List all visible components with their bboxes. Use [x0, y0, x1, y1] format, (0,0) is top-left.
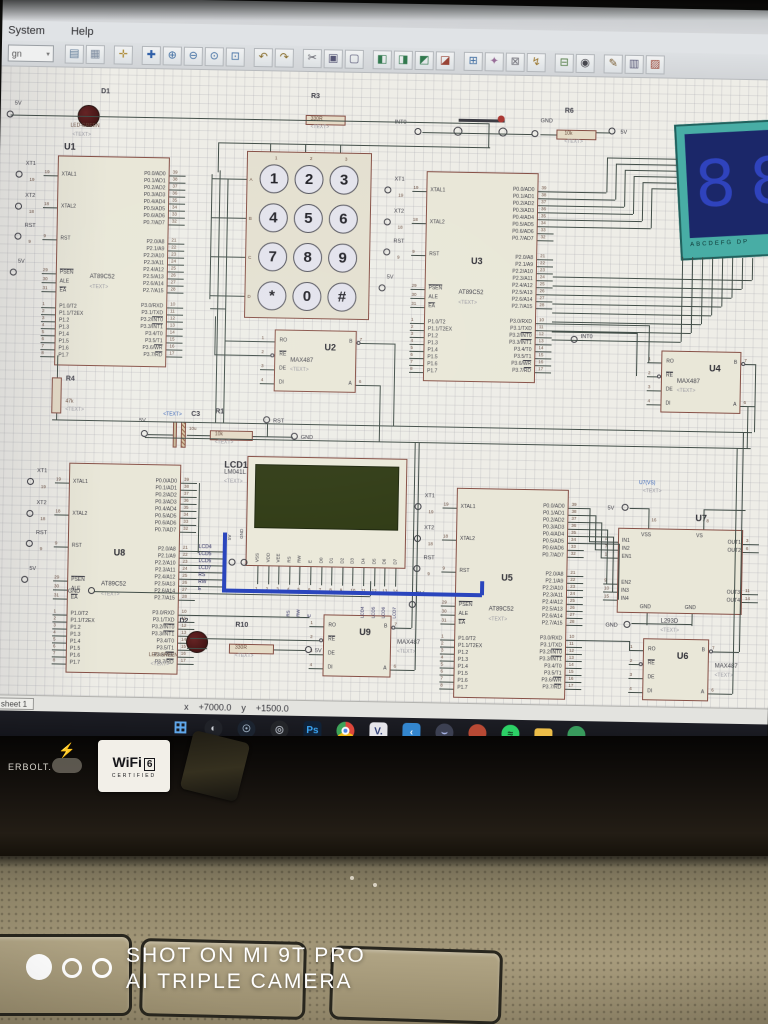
pin-label: P2.0/A8 — [479, 255, 533, 261]
reflection-dot — [373, 883, 377, 887]
pin-label: EN2 — [621, 581, 643, 586]
wire — [257, 566, 258, 584]
wire — [580, 536, 613, 538]
wire — [630, 508, 649, 509]
wire — [565, 689, 581, 690]
pin-label: P0.5/AD5 — [480, 222, 534, 228]
capacitor-plate — [173, 422, 177, 448]
wifi6-sticker: WiFi6 CERTIFIED — [98, 740, 170, 792]
pin-number: 13 — [181, 630, 186, 635]
windows-start-icon[interactable]: ⊞ — [171, 719, 189, 737]
terminal-pin-number: 19 — [41, 484, 46, 489]
terminal-pin-number: 9 — [40, 546, 43, 551]
pin-number: 27 — [171, 279, 176, 284]
wire — [223, 179, 228, 423]
pin-number: 33 — [541, 227, 546, 232]
net-label-lcd5: LCD5 — [199, 551, 212, 557]
wire — [210, 256, 245, 258]
pin-label: P1.0/T2 — [458, 637, 512, 643]
packaging-icon[interactable]: ⊠ — [506, 53, 525, 72]
wire — [642, 182, 644, 221]
pick-part-icon[interactable]: ⊞ — [464, 52, 483, 71]
terminal-rst[interactable] — [383, 248, 390, 255]
wire — [540, 134, 556, 135]
terminal-xt1[interactable] — [27, 478, 34, 485]
component-text: <TEXT> — [72, 132, 91, 138]
wire — [225, 340, 261, 342]
pin-label: P3.3/INT1 — [120, 632, 174, 638]
terminal-xt2[interactable] — [15, 203, 22, 210]
terminal-pin-number: 9 — [28, 239, 31, 244]
led-D2[interactable] — [186, 631, 208, 653]
remove-sheet-icon[interactable]: ▨ — [646, 55, 665, 74]
terminal-label: RST — [36, 530, 47, 536]
pin-label: P0.5/AD5 — [510, 539, 564, 545]
pin-number: 22 — [540, 260, 545, 265]
pin-label: P3.5/T1 — [507, 671, 561, 677]
grid-toggle-icon[interactable]: ▦ — [86, 45, 105, 64]
pin-label: P2.5/A13 — [121, 582, 175, 588]
pin-label: P2.3/A11 — [110, 260, 164, 266]
pin-label: P0.0/AD0 — [480, 187, 534, 193]
net-label-lcd4: LCD4 — [199, 544, 212, 550]
wire — [167, 292, 183, 293]
copy-icon[interactable]: ▣ — [324, 49, 343, 68]
pin-label: P2.1/A9 — [122, 554, 176, 560]
pin-number: 25 — [182, 573, 187, 578]
pin-label: P3.2/INT0 — [109, 317, 163, 323]
lcd-pin-label: D1 — [329, 537, 334, 563]
pin-label: P1.7 — [457, 686, 511, 692]
terminal-xt2[interactable] — [26, 510, 33, 517]
pin-label: P0.7/AD7 — [479, 236, 533, 242]
lcd-pin-label: D5 — [371, 538, 376, 564]
y-label: y — [241, 702, 246, 712]
pin-label: XTAL1 — [461, 505, 515, 511]
terminal-rst[interactable] — [14, 233, 21, 240]
wire — [625, 170, 677, 172]
terminal-5v[interactable] — [10, 269, 17, 276]
pin-label: B — [725, 361, 737, 366]
pin-number: 7 — [410, 359, 413, 364]
wire — [169, 224, 185, 225]
terminal-xt1[interactable] — [384, 186, 391, 193]
pin-label: EN1 — [622, 555, 644, 560]
wire — [553, 285, 742, 289]
search-tag-icon[interactable]: ◉ — [576, 54, 595, 73]
component-ref: D2 — [179, 618, 188, 625]
pin-number: 2 — [648, 370, 651, 375]
pin-label: EA — [428, 304, 482, 310]
lcd-screen — [254, 464, 399, 531]
paste-icon[interactable]: ▢ — [345, 50, 364, 69]
terminal-label: GND — [68, 589, 80, 595]
component-text: <TEXT> — [714, 673, 733, 679]
wire — [646, 613, 647, 623]
component-ref: LCD1 — [224, 459, 248, 469]
pin-label: DI — [328, 665, 358, 671]
wire — [616, 164, 677, 166]
pin-number: 38 — [571, 509, 576, 514]
terminal-gnd[interactable] — [623, 621, 630, 628]
wire — [180, 532, 196, 533]
pin-label: P2.5/A13 — [509, 607, 563, 613]
sheet-icon[interactable]: ▤ — [65, 45, 84, 64]
wire — [393, 344, 396, 426]
lcd-pin-label: RS — [286, 537, 291, 563]
wire — [629, 641, 630, 650]
terminal-xt1[interactable] — [16, 171, 23, 178]
pin-label: A — [724, 403, 736, 408]
wire — [636, 333, 638, 376]
pin-number: 1 — [630, 644, 633, 649]
wire — [441, 614, 455, 615]
wire — [211, 217, 246, 219]
pin-number: 28 — [539, 302, 544, 307]
wire — [536, 308, 552, 309]
wire — [703, 509, 704, 517]
wire — [260, 383, 274, 384]
pin-label: P1.0/T2 — [70, 612, 124, 618]
pin-number: 33 — [571, 544, 576, 549]
pin-label: ALE — [60, 279, 114, 285]
terminal-pin-number: 18 — [40, 516, 45, 521]
pin-label: RST — [72, 544, 126, 550]
pin-label: A — [375, 666, 387, 671]
terminal-label: XT1 — [425, 493, 435, 499]
inversion-bubble — [270, 353, 274, 357]
pin-number: 9 — [55, 540, 58, 545]
menu-item-help[interactable]: Help — [71, 26, 94, 38]
x-value: +7000.0 — [199, 702, 232, 713]
wire — [603, 599, 617, 600]
x-label: x — [184, 701, 189, 711]
pin-label: EA — [71, 596, 125, 602]
pin-label: P1.1/T2EX — [70, 619, 124, 625]
pin-number: 6 — [53, 643, 56, 648]
pin-number: 9 — [412, 249, 415, 254]
resistor-R4[interactable] — [51, 377, 62, 413]
pin-label: P1.6 — [58, 346, 112, 352]
wire — [708, 693, 722, 694]
terminal-5v[interactable] — [228, 559, 235, 566]
pin-number: 2 — [261, 349, 264, 354]
wire — [370, 385, 380, 386]
terminal-pin-number: 19 — [398, 193, 403, 198]
wire-autorouter-icon[interactable]: ⊟ — [555, 53, 574, 72]
pin-number: 3 — [648, 384, 651, 389]
wire — [222, 532, 227, 590]
wire — [628, 678, 642, 679]
block-delete-icon[interactable]: ◪ — [436, 51, 455, 70]
pin-number: 17 — [169, 350, 174, 355]
watermark-line2: AI TRIPLE CAMERA — [126, 970, 353, 994]
pin-label: P1.5 — [457, 672, 511, 678]
pin-number: 28 — [182, 594, 187, 599]
wire — [214, 354, 260, 356]
wire — [300, 567, 301, 585]
resistor-value: 47k — [65, 400, 73, 405]
pin-label: P2.1/A9 — [479, 262, 533, 268]
pin-label: P0.3/AD3 — [123, 500, 177, 506]
wire — [554, 219, 642, 222]
pin-label: DE — [647, 675, 677, 681]
decompose-icon[interactable]: ↯ — [527, 53, 546, 72]
pin-number: 30 — [411, 292, 416, 297]
property-assign-icon[interactable]: ✎ — [604, 54, 623, 73]
wire — [43, 207, 57, 208]
terminal-label: 5V — [18, 259, 25, 265]
block-move-icon[interactable]: ◨ — [394, 51, 413, 70]
wifi-brand: WiFi — [113, 754, 142, 770]
wire — [682, 257, 683, 269]
inversion-bubble — [639, 662, 643, 666]
wire — [305, 144, 306, 152]
pin-number: 1 — [411, 317, 414, 322]
net-label-rw: RW — [198, 579, 206, 585]
resistor-value: 10k — [215, 432, 223, 437]
pin-number: 26 — [182, 580, 187, 585]
wire — [331, 567, 332, 585]
pin-label: OUT4 — [716, 599, 740, 604]
terminal-label: 5V — [315, 648, 322, 654]
make-device-icon[interactable]: ✦ — [485, 52, 504, 71]
pin-number: 39 — [541, 185, 546, 190]
wire — [648, 516, 649, 528]
component-ref: U6 — [677, 651, 689, 661]
wire — [191, 572, 225, 574]
pin-number: 31 — [42, 285, 47, 290]
wire — [704, 509, 746, 511]
pin-label: VSS — [641, 533, 659, 538]
zoom-out-icon[interactable]: ⊖ — [184, 47, 203, 66]
watermark-dot-outline — [62, 958, 82, 978]
pin-number: 16 — [568, 676, 573, 681]
wire — [57, 355, 58, 377]
component-text: <TEXT> — [235, 653, 254, 659]
resistor-value: 330R — [235, 646, 247, 651]
terminal-pin-number: 19 — [29, 177, 34, 182]
pin-label: B — [341, 340, 353, 345]
pin-label: EA — [59, 288, 113, 294]
pin-label: DE — [666, 388, 696, 394]
pin-label: P0.1/AD1 — [510, 511, 564, 517]
pin-number: 2 — [53, 615, 56, 620]
terminal-5v[interactable] — [21, 576, 28, 583]
pin-label: OUT3 — [716, 591, 740, 596]
block-copy-icon[interactable]: ◧ — [373, 50, 392, 69]
pin-label: P0.5/AD5 — [122, 514, 176, 520]
wire — [54, 546, 68, 547]
pin-number: 2 — [42, 308, 45, 313]
laptop-screen: SystemHelp gn▾▤▦✛✚⊕⊖⊙⊡↶↷✂▣▢◧◨◩◪⊞✦⊠↯⊟◉✎▥▨… — [0, 0, 768, 752]
pin-number: 12 — [569, 648, 574, 653]
wire — [52, 419, 752, 433]
pin-number: 10 — [182, 609, 187, 614]
pushbutton[interactable] — [498, 127, 507, 136]
pin-label: P0.6/AD6 — [111, 213, 165, 219]
pin-label: P3.0/RXD — [121, 611, 175, 617]
wire — [647, 362, 661, 363]
pin-label: P3.7/RD — [108, 352, 162, 358]
pin-number: 24 — [570, 591, 575, 596]
sheet-tab[interactable]: sheet 1 — [0, 697, 34, 710]
pin-number: 2 — [310, 634, 313, 639]
pin-label: ALE — [428, 295, 482, 301]
laptop-bezel: ⚡ ERBOLT. WiFi6 CERTIFIED — [0, 736, 768, 858]
terminal-5v[interactable] — [608, 127, 615, 134]
wire — [352, 568, 353, 586]
pin-number: 17 — [181, 658, 186, 663]
pin-number: 14 — [538, 345, 543, 350]
pin-label: RE — [666, 374, 696, 380]
pin-number: 39 — [184, 477, 189, 482]
wire — [554, 226, 651, 229]
wire — [52, 663, 66, 664]
pin-number: 34 — [541, 220, 546, 225]
pin-label: P2.7/A15 — [109, 288, 163, 294]
undo-icon[interactable]: ↶ — [254, 48, 273, 67]
pushbutton[interactable] — [453, 127, 462, 136]
cut-icon[interactable]: ✂ — [303, 49, 322, 68]
pin-label: P3.3/INT1 — [478, 340, 532, 346]
capacitor-value: 10u — [189, 426, 197, 431]
pin-label: B — [375, 624, 387, 629]
terminal-label: RST — [25, 223, 36, 229]
wire — [412, 223, 426, 224]
net-label-lcd6: LCD6 — [381, 596, 386, 618]
wifi-num: 6 — [144, 758, 156, 771]
wire — [212, 178, 247, 180]
menu-item-system[interactable]: System — [8, 24, 45, 37]
terminal-5v[interactable] — [379, 284, 386, 291]
terminal-label: GND — [541, 118, 553, 124]
pin-number: 21 — [171, 237, 176, 242]
pin-number: 10 — [539, 317, 544, 322]
pin-label: P1.1/T2EX — [458, 644, 512, 650]
redo-icon[interactable]: ↷ — [275, 48, 294, 67]
pin-label: RST — [429, 252, 483, 258]
pin-label: P1.2 — [70, 626, 124, 632]
wire — [612, 592, 617, 593]
terminal-5v[interactable] — [622, 504, 629, 511]
pin-number: 38 — [541, 192, 546, 197]
pin-label: XTAL1 — [62, 172, 116, 178]
pin-label: PSEN — [429, 286, 483, 292]
zoom-all-icon[interactable]: ⊙ — [205, 47, 224, 66]
pin-number: 6 — [743, 400, 746, 405]
led-part: LED-GREEN — [149, 653, 178, 659]
pin-number: 6 — [42, 336, 45, 341]
zoom-area-icon[interactable]: ⊡ — [226, 47, 245, 66]
wire — [568, 557, 584, 558]
keypad-row-label: B — [249, 216, 252, 221]
pin-label: P3.4/T0 — [477, 347, 531, 353]
pin-label: A — [692, 690, 704, 695]
terminal-gnd[interactable] — [240, 559, 247, 566]
pin-label: P0.0/AD0 — [511, 504, 565, 510]
component-ref: U2 — [324, 342, 336, 352]
pin-number: 14 — [569, 662, 574, 667]
pin-label: P1.0/T2 — [59, 304, 113, 310]
wire — [198, 483, 200, 553]
pin-number: 36 — [541, 206, 546, 211]
component-text: <TEXT> — [224, 478, 243, 484]
reflection-dot — [350, 876, 354, 880]
component-text: <TEXT> — [660, 628, 679, 634]
seven-segment-display[interactable]: 88ABCDEFG DP — [674, 119, 768, 261]
net-label-rs: RS — [198, 572, 205, 578]
wire — [692, 257, 693, 269]
pin-number: 22 — [570, 577, 575, 582]
origin-icon[interactable]: ✛ — [114, 45, 133, 64]
terminal-xt2[interactable] — [384, 218, 391, 225]
pin-number: 15 — [181, 644, 186, 649]
pin-label: P1.7 — [427, 369, 481, 375]
terminal-rst[interactable] — [26, 540, 33, 547]
wifi-certified: CERTIFIED — [112, 773, 156, 779]
pin-label: P0.1/AD1 — [123, 486, 177, 492]
rotation-combobox[interactable]: gn▾ — [8, 44, 54, 62]
net-label-e: E — [198, 586, 201, 592]
cursor-coordinates: x +7000.0 y +1500.0 — [184, 701, 289, 713]
wire — [44, 175, 58, 176]
wire — [309, 668, 323, 669]
terminal-int0[interactable] — [414, 128, 421, 135]
pin-number: 37 — [172, 183, 177, 188]
pin-number: 1 — [441, 634, 444, 639]
pin-number: 19 — [444, 502, 449, 507]
pin-label: P2.6/A14 — [478, 297, 532, 303]
new-sheet-icon[interactable]: ▥ — [625, 55, 644, 74]
pin-label: P0.4/AD4 — [122, 507, 176, 513]
pin-number: 3 — [629, 672, 632, 677]
terminal-label: 5V — [387, 274, 394, 280]
wire — [178, 664, 194, 665]
resistor-value: 10k — [564, 132, 572, 137]
pin-number: 34 — [571, 537, 576, 542]
component-ref: U4 — [709, 363, 721, 373]
wire — [191, 579, 225, 581]
pin-number: 10 — [604, 585, 609, 590]
pin-number: 38 — [172, 177, 177, 182]
pin-number: 11 — [745, 588, 750, 593]
pin-label: P3.5/T1 — [477, 354, 531, 360]
block-rotate-icon[interactable]: ◩ — [415, 51, 434, 70]
pin-label: P0.7/AD7 — [122, 528, 176, 534]
pan-icon[interactable]: ✚ — [142, 46, 161, 65]
wire — [166, 356, 182, 357]
wire — [722, 694, 732, 695]
terminal-5v[interactable] — [141, 430, 148, 437]
wire — [278, 567, 279, 585]
pin-label: P1.5 — [58, 339, 112, 345]
wire — [440, 623, 454, 624]
schematic-canvas[interactable]: U1AT89C52<TEXT>XTAL119XTAL218RST9PSEN29A… — [0, 66, 768, 708]
pin-number: 15 — [170, 336, 175, 341]
zoom-in-icon[interactable]: ⊕ — [163, 46, 182, 65]
watermark-dot-outline — [92, 958, 112, 978]
wire — [702, 257, 703, 269]
pin-number: 25 — [570, 598, 575, 603]
pin-number: 11 — [539, 324, 544, 329]
pin-label: P2.3/A11 — [479, 276, 533, 282]
pin-number: 3 — [441, 647, 444, 652]
pin-label: P3.4/T0 — [109, 331, 163, 337]
lcd-pin-label: D3 — [350, 538, 355, 564]
pin-number: 5 — [42, 329, 45, 334]
wire — [384, 568, 385, 586]
